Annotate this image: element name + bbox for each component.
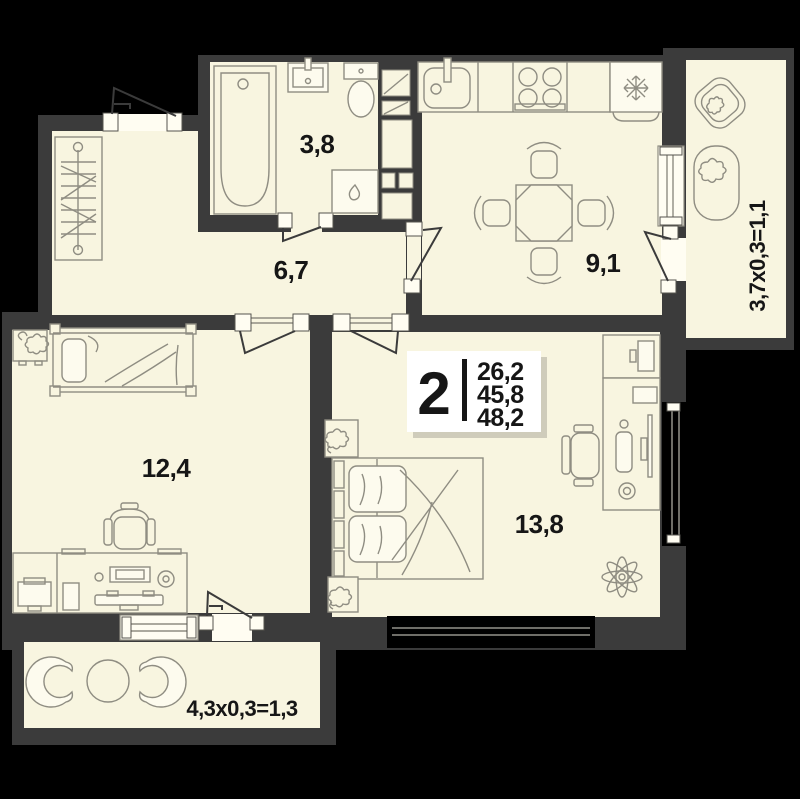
room-label-bathroom: 3,8 [300,129,335,159]
washing-machine-icon [332,170,378,213]
kitchen-window [658,146,684,226]
vent-shaft [382,70,413,219]
round-table-icon [87,660,129,702]
room-label-bedroom-left: 12,4 [142,453,192,483]
floor-plan-canvas: 3,8 6,7 9,1 12,4 13,8 3,7x0,3=1,1 4,3x0,… [0,0,800,799]
fridge-icon [610,62,662,121]
room-label-bedroom-right: 13,8 [515,509,564,539]
summary-divider [462,359,467,421]
nightstand-icon [328,577,358,612]
bathroom-sink-icon [288,58,328,92]
printer-icon [18,578,51,611]
desk-icon [603,335,660,510]
dining-table-icon [516,185,572,241]
area-total: 48,2 [477,404,524,432]
bedroom-left-window [120,615,198,640]
nightstand-icon [325,420,358,457]
summary-box: 2 26,2 45,8 48,2 [407,351,547,438]
wardrobe-icon [55,137,102,260]
rooms-count: 2 [417,360,450,427]
nightstand-icon [13,330,49,365]
balcony-right-label: 3,7x0,3=1,1 [745,200,770,312]
balcony-bottom-label: 4,3x0,3=1,3 [186,696,298,721]
floor-plan: 3,8 6,7 9,1 12,4 13,8 3,7x0,3=1,1 4,3x0,… [0,0,800,799]
kitchen-counter [418,58,610,112]
double-bed-icon [332,458,483,579]
bedroom-right-side-window [662,402,690,546]
bathtub-icon [214,66,276,214]
desk-icon [13,549,187,613]
single-bed-icon [50,324,196,396]
room-label-hallway: 6,7 [274,255,309,285]
bedroom-right-bottom-window [387,616,595,648]
room-label-kitchen: 9,1 [586,248,621,278]
